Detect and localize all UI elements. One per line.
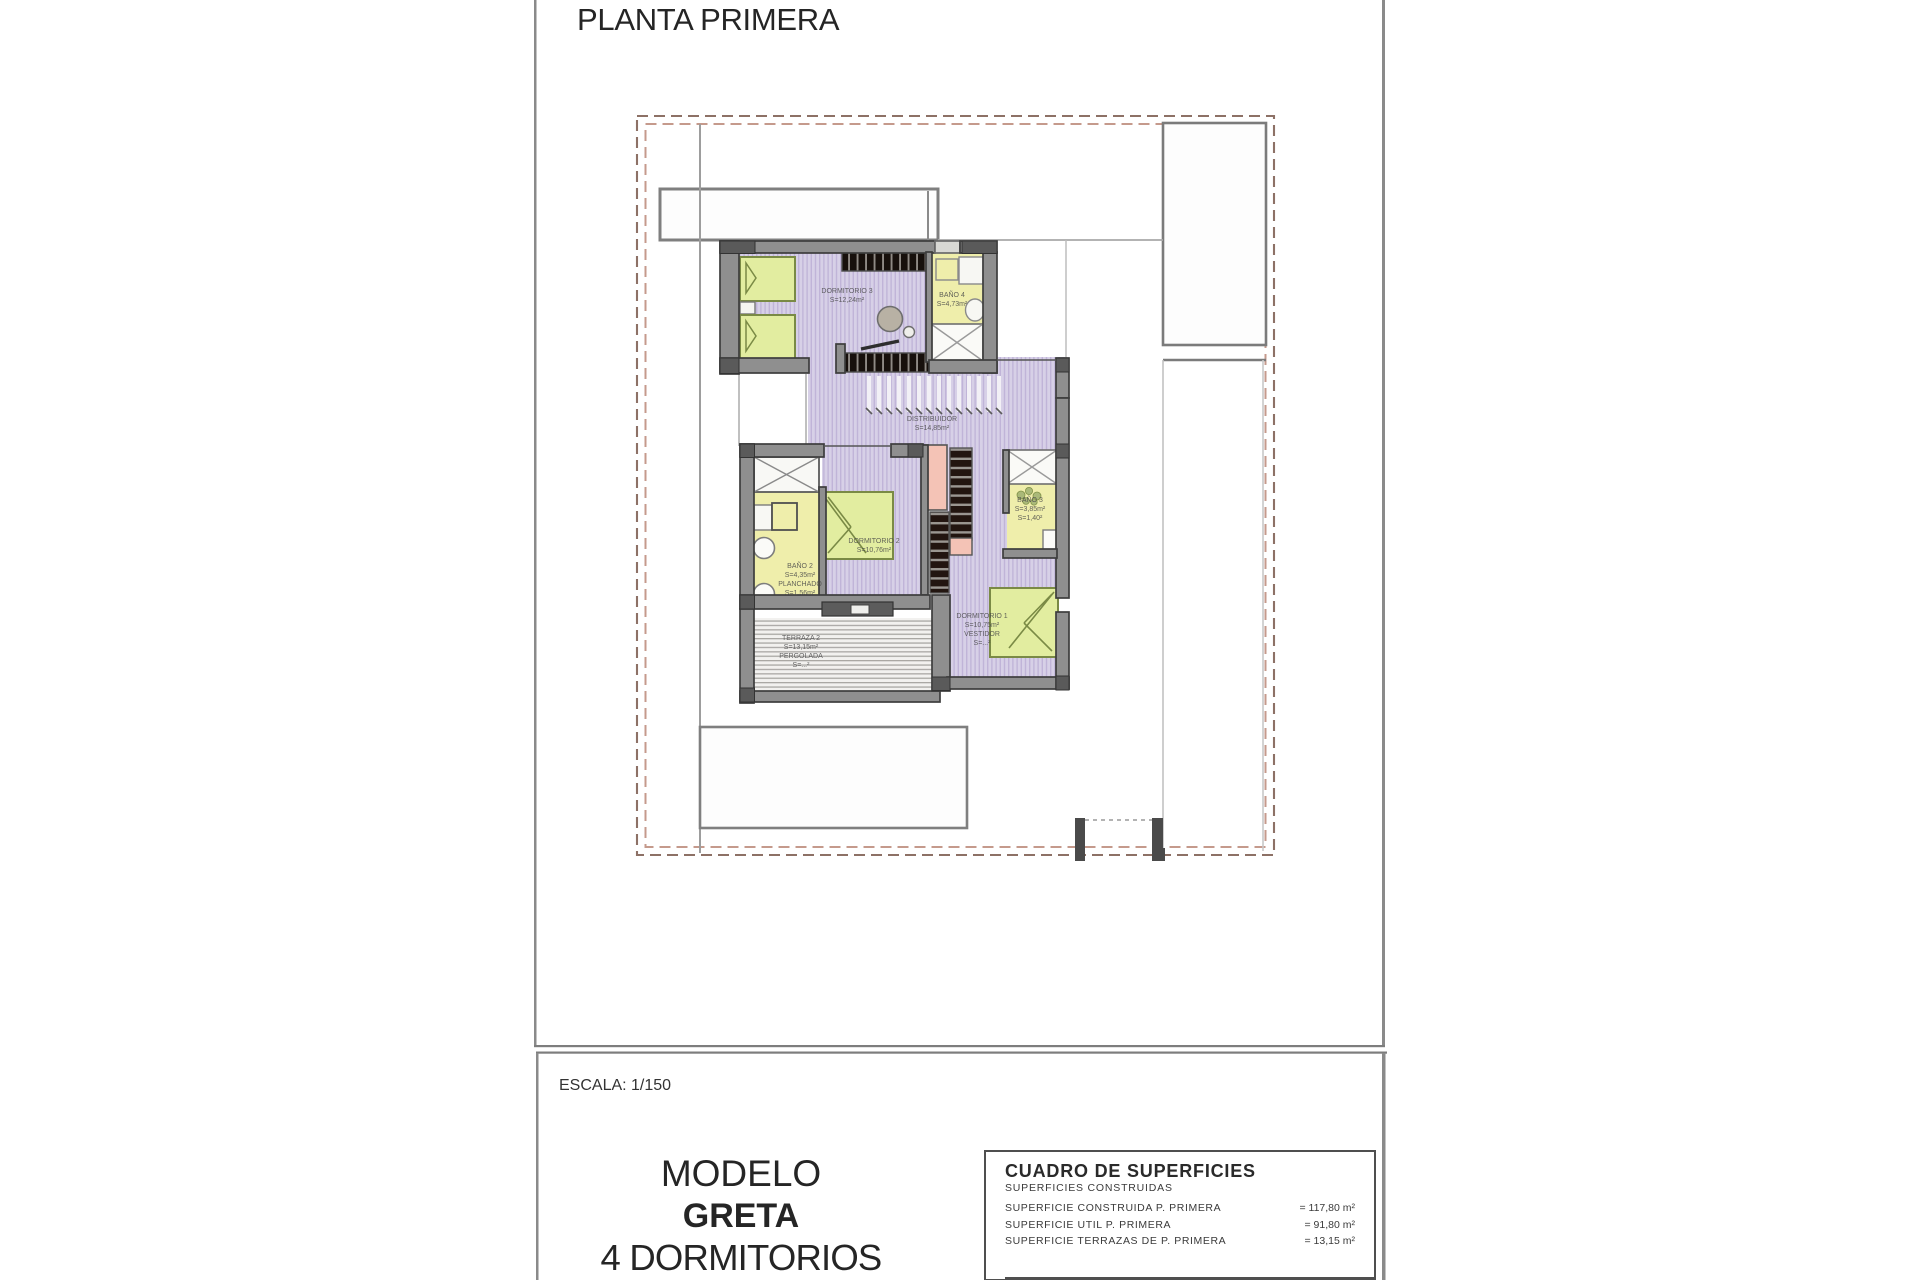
svg-text:S=10,75m²: S=10,75m²: [965, 622, 1000, 629]
svg-text:= 13,15 m²: = 13,15 m²: [1305, 1235, 1356, 1247]
svg-text:BAÑO 4: BAÑO 4: [939, 290, 965, 299]
svg-text:BAÑO 3: BAÑO 3: [1017, 495, 1043, 504]
svg-text:DORMITORIO 2: DORMITORIO 2: [848, 538, 899, 545]
svg-text:S=3,85m²: S=3,85m²: [1015, 506, 1046, 513]
svg-text:S=...²: S=...²: [793, 662, 811, 669]
svg-text:ESCALA: 1/150: ESCALA: 1/150: [559, 1077, 671, 1094]
svg-text:PLANTA PRIMERA: PLANTA PRIMERA: [577, 2, 840, 37]
svg-text:S=...²: S=...²: [974, 640, 992, 647]
svg-text:S=14,85m²: S=14,85m²: [915, 425, 950, 432]
svg-text:= 91,80 m²: = 91,80 m²: [1305, 1219, 1356, 1231]
svg-text:CUADRO DE SUPERFICIES: CUADRO DE SUPERFICIES: [1005, 1161, 1256, 1181]
svg-text:DORMITORIO 3: DORMITORIO 3: [821, 288, 872, 295]
svg-text:4 DORMITORIOS: 4 DORMITORIOS: [601, 1237, 882, 1278]
svg-text:S=12,24m²: S=12,24m²: [830, 297, 865, 304]
svg-text:BAÑO 2: BAÑO 2: [787, 561, 813, 570]
svg-text:S=1,40²: S=1,40²: [1018, 515, 1043, 522]
svg-text:S=4,73m²: S=4,73m²: [937, 301, 968, 308]
svg-text:DORMITORIO 1: DORMITORIO 1: [956, 613, 1007, 620]
svg-text:PLANCHADO: PLANCHADO: [778, 581, 822, 588]
svg-text:MODELO: MODELO: [661, 1153, 821, 1194]
svg-text:SUPERFICIE CONSTRUIDA P. PRIME: SUPERFICIE CONSTRUIDA P. PRIMERA: [1005, 1202, 1221, 1214]
svg-text:VESTIDOR: VESTIDOR: [964, 631, 1000, 638]
svg-text:= 117,80 m²: = 117,80 m²: [1299, 1202, 1355, 1214]
svg-text:S=4,35m²: S=4,35m²: [785, 572, 816, 579]
svg-text:SUPERFICIE TERRAZAS DE P. PRIM: SUPERFICIE TERRAZAS DE P. PRIMERA: [1005, 1235, 1226, 1247]
svg-text:SUPERFICIE UTIL P. PRIMERA: SUPERFICIE UTIL P. PRIMERA: [1005, 1219, 1171, 1231]
svg-text:S=10,76m²: S=10,76m²: [857, 547, 892, 554]
svg-text:S=13,15m²: S=13,15m²: [784, 644, 819, 651]
svg-text:GRETA: GRETA: [683, 1197, 799, 1235]
svg-text:SUPERFICIES CONSTRUIDAS: SUPERFICIES CONSTRUIDAS: [1005, 1182, 1173, 1194]
svg-text:DISTRIBUIDOR: DISTRIBUIDOR: [907, 416, 957, 423]
svg-text:PERGOLADA: PERGOLADA: [779, 653, 823, 660]
svg-text:TERRAZA 2: TERRAZA 2: [782, 635, 820, 642]
svg-text:S=1,56m²: S=1,56m²: [785, 590, 816, 597]
